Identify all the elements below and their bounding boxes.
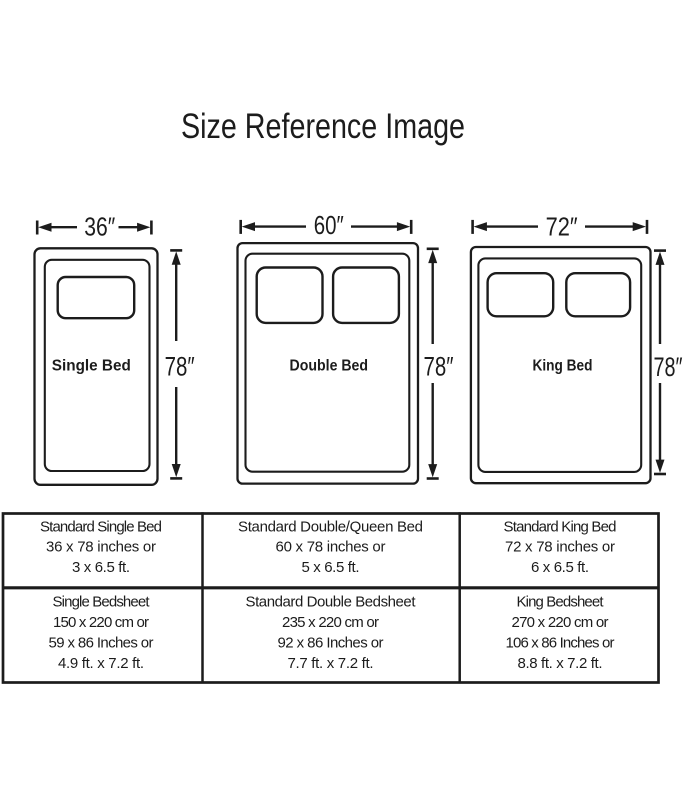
svg-text:235 x 220 cm or: 235 x 220 cm or xyxy=(282,614,379,631)
svg-text:7.7 ft. x 7.2 ft.: 7.7 ft. x 7.2 ft. xyxy=(288,655,374,672)
svg-text:6 x 6.5 ft.: 6 x 6.5 ft. xyxy=(531,559,589,576)
svg-text:60″: 60″ xyxy=(314,210,344,240)
svg-text:Double Bed: Double Bed xyxy=(290,357,369,374)
svg-text:106 x 86 Inches or: 106 x 86 Inches or xyxy=(506,635,615,652)
svg-text:Standard King Bed: Standard King Bed xyxy=(504,518,617,535)
svg-text:78″: 78″ xyxy=(424,352,454,382)
svg-text:72 x 78 inches or: 72 x 78 inches or xyxy=(505,539,615,556)
svg-text:36 x 78 inches or: 36 x 78 inches or xyxy=(46,539,156,556)
svg-text:3 x 6.5 ft.: 3 x 6.5 ft. xyxy=(72,559,130,576)
svg-text:Size Reference Image: Size Reference Image xyxy=(181,107,465,146)
svg-text:78″: 78″ xyxy=(165,352,195,382)
svg-text:King Bed: King Bed xyxy=(533,358,593,375)
svg-text:36″: 36″ xyxy=(84,211,115,241)
svg-text:59 x 86 Inches or: 59 x 86 Inches or xyxy=(49,635,154,652)
svg-text:92 x 86 Inches or: 92 x 86 Inches or xyxy=(278,635,384,652)
svg-text:Standard Double Bedsheet: Standard Double Bedsheet xyxy=(246,594,417,611)
svg-text:4.9 ft. x 7.2 ft.: 4.9 ft. x 7.2 ft. xyxy=(58,655,144,672)
svg-text:150 x 220 cm or: 150 x 220 cm or xyxy=(53,614,149,631)
svg-text:60 x 78 inches or: 60 x 78 inches or xyxy=(276,539,386,556)
svg-text:Standard Single Bed: Standard Single Bed xyxy=(40,518,162,535)
svg-text:King Bedsheet: King Bedsheet xyxy=(517,594,605,611)
svg-text:78″: 78″ xyxy=(654,352,683,382)
svg-text:8.8 ft. x 7.2 ft.: 8.8 ft. x 7.2 ft. xyxy=(518,655,603,672)
svg-text:Single Bed: Single Bed xyxy=(52,357,131,374)
svg-text:5 x 6.5 ft.: 5 x 6.5 ft. xyxy=(302,559,360,576)
svg-text:Single Bedsheet: Single Bedsheet xyxy=(53,594,151,611)
svg-text:270 x 220 cm or: 270 x 220 cm or xyxy=(512,614,609,631)
svg-text:72″: 72″ xyxy=(546,211,578,241)
svg-text:Standard Double/Queen Bed: Standard Double/Queen Bed xyxy=(238,518,423,535)
